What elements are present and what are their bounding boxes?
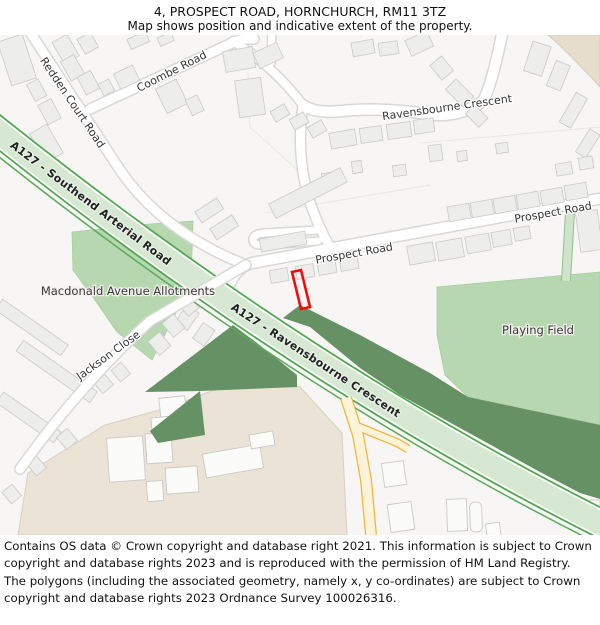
- building: [269, 268, 289, 284]
- building: [491, 229, 512, 247]
- map-header: 4, PROSPECT ROAD, HORNCHURCH, RM11 3TZ M…: [0, 0, 600, 35]
- building: [378, 41, 399, 57]
- building: [564, 182, 588, 201]
- building: [469, 502, 482, 532]
- building: [493, 195, 517, 214]
- green-path-fill: [566, 212, 570, 281]
- building: [392, 164, 406, 177]
- building: [146, 480, 163, 501]
- map-svg: Coombe Road Redden Court Road Ravensbour…: [0, 35, 600, 535]
- building: [555, 162, 573, 177]
- building: [495, 142, 508, 154]
- page-title: 4, PROSPECT ROAD, HORNCHURCH, RM11 3TZ: [0, 0, 600, 19]
- map-canvas: Coombe Road Redden Court Road Ravensbour…: [0, 35, 600, 535]
- building: [386, 121, 412, 139]
- building: [465, 233, 492, 254]
- page-subtitle: Map shows position and indicative extent…: [0, 19, 600, 33]
- building: [540, 187, 564, 206]
- building: [107, 436, 146, 482]
- copyright-text: Contains OS data © Crown copyright and d…: [0, 535, 600, 608]
- building: [165, 466, 199, 494]
- building: [235, 77, 266, 117]
- building: [447, 203, 471, 222]
- building: [359, 126, 383, 144]
- building: [436, 238, 465, 261]
- building: [387, 501, 415, 532]
- building: [456, 150, 467, 161]
- label-playing-field: Playing Field: [502, 323, 574, 337]
- building: [578, 156, 594, 170]
- copyright-footer: Contains OS data © Crown copyright and d…: [0, 535, 600, 625]
- building: [428, 144, 443, 162]
- building: [381, 461, 406, 488]
- building: [446, 499, 467, 532]
- label-macdonald-allotments: Macdonald Avenue Allotments: [41, 284, 215, 298]
- building: [516, 191, 540, 210]
- building: [513, 226, 531, 242]
- building: [413, 118, 435, 135]
- building: [351, 160, 363, 173]
- building: [407, 242, 436, 265]
- building: [470, 199, 494, 218]
